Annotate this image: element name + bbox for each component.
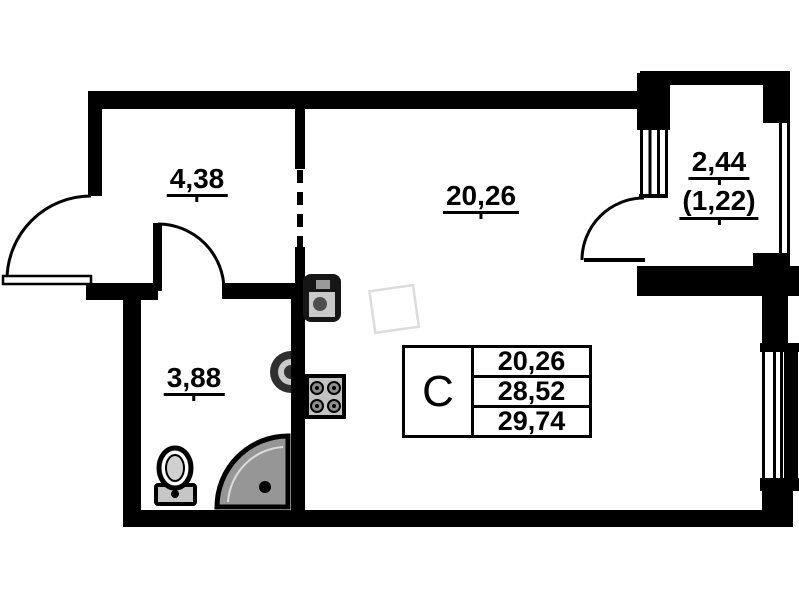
- balcony-glazing-icon: [781, 123, 789, 257]
- balcony-area-coefficient-value: (1,22): [679, 186, 758, 219]
- area-label-balcony: 2,44 (1,22): [679, 147, 758, 226]
- bathroom-door-icon: [153, 223, 224, 291]
- balcony-window-icon: [642, 128, 667, 196]
- under-balcony-wall: [637, 266, 799, 296]
- bottom-wall: [123, 510, 793, 527]
- shower-tray-icon: [217, 436, 288, 507]
- apartment-area-row: 28,52: [474, 375, 589, 405]
- toilet-icon: [156, 448, 195, 504]
- refrigerator-ghost-icon: [369, 285, 418, 333]
- balcony-right-block: [763, 73, 790, 123]
- balcony-door-icon: [582, 198, 645, 262]
- right-wall-lower: [762, 491, 793, 527]
- area-label-bathroom: 3,88: [164, 363, 225, 396]
- living-room-area-value: 20,26: [443, 181, 519, 214]
- unit-area-values: 20,26 28,52 29,74: [474, 348, 589, 435]
- stove-icon: [307, 376, 344, 417]
- facade-window-icon: [764, 352, 782, 478]
- balcony-area-value: 2,44: [689, 147, 750, 180]
- unit-info-table: С 20,26 28,52 29,74: [402, 345, 592, 438]
- top-wall: [88, 91, 640, 109]
- bathroom-area-value: 3,88: [164, 363, 225, 396]
- bathroom-left-wall: [123, 297, 141, 523]
- left-wall-upper: [88, 91, 102, 196]
- unit-type-cell: С: [405, 348, 474, 435]
- area-label-living-room: 20,26: [443, 181, 519, 214]
- entrance-step-wall: [86, 283, 158, 300]
- kitchen-sink-icon: [303, 274, 341, 322]
- living-area-row: 20,26: [474, 348, 589, 375]
- area-label-hallway: 4,38: [167, 164, 228, 197]
- walls: [86, 71, 799, 527]
- total-area-row: 29,74: [474, 405, 589, 435]
- floor-plan: 4,38 20,26 3,88 2,44 (1,22) С 20,26 28,5…: [0, 0, 799, 600]
- hallway-area-value: 4,38: [167, 164, 228, 197]
- floor-plan-drawing: [0, 0, 799, 600]
- window-top-cap: [760, 343, 799, 352]
- bathroom-right-wall: [291, 283, 305, 515]
- window-bottom-cap: [760, 478, 799, 491]
- entrance-door-icon: [3, 196, 91, 284]
- washbasin-icon: [270, 351, 291, 393]
- partition-stub-top: [295, 107, 305, 169]
- window-outer-column: [784, 352, 798, 478]
